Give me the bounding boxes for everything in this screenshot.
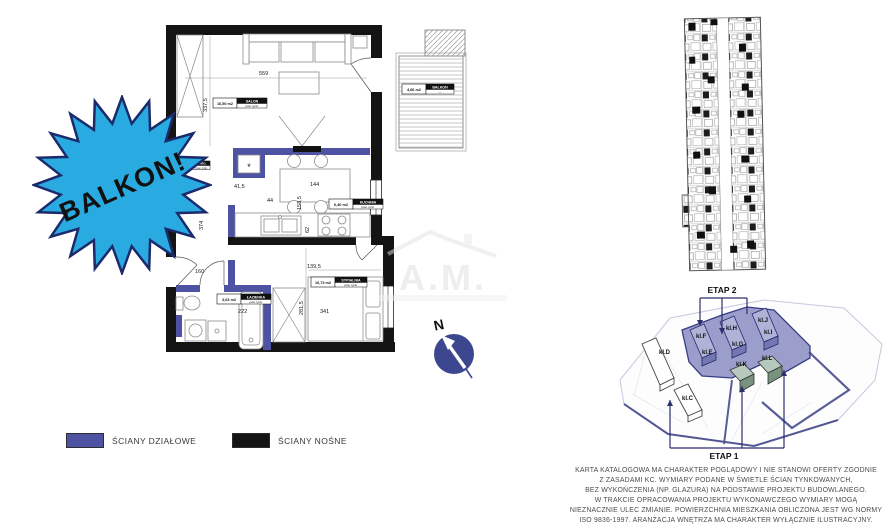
svg-text:10,73 m2: 10,73 m2 <box>315 281 331 285</box>
svg-text:139,5: 139,5 <box>307 264 321 270</box>
catalog-card: * <box>0 0 890 532</box>
svg-text:41,5: 41,5 <box>234 184 245 190</box>
balkon-badge: BALKON! <box>32 95 212 275</box>
svg-text:559: 559 <box>259 71 268 77</box>
svg-text:kl.J: kl.J <box>758 318 768 324</box>
svg-text:kl.C: kl.C <box>682 396 694 402</box>
svg-text:222: 222 <box>238 309 247 315</box>
svg-text:SYPIALNIA: SYPIALNIA <box>341 278 361 282</box>
site-plan: ETAP 2 ETAP 1 kl.D kl.F kl.E kl.H kl.G k… <box>612 282 890 464</box>
disclaimer-line: KARTA KATALOGOWA MA CHARAKTER POGLĄDOWY … <box>564 466 888 476</box>
svg-text:ŁAZIENKA: ŁAZIENKA <box>247 295 266 299</box>
svg-text:kl.K: kl.K <box>736 362 748 368</box>
svg-text:153,5: 153,5 <box>297 196 303 210</box>
svg-text:kl.H: kl.H <box>726 326 737 332</box>
svg-text:144: 144 <box>310 182 319 188</box>
tv <box>293 146 321 152</box>
disclaimer-line: BEZ WYKOŃCZENIA (NP. GLAZURA) NA PODSTAW… <box>564 486 888 496</box>
balcony-divider <box>425 30 465 56</box>
svg-text:341: 341 <box>320 309 329 315</box>
room-label-kuchnia: 6,40 m2 KUCHNIA pow. tynk. <box>329 199 383 209</box>
bearing-wall-label: ŚCIANY NOŚNE <box>278 436 347 446</box>
svg-text:kl.D: kl.D <box>659 350 671 356</box>
disclaimer-line: NIEZNACZNIE ULEC ZMIANIE. POWIERZCHNIA M… <box>564 506 888 516</box>
svg-text:16,50 m2: 16,50 m2 <box>217 102 233 106</box>
svg-text:kl.E: kl.E <box>702 350 713 356</box>
svg-text:6,40 m2: 6,40 m2 <box>334 203 348 207</box>
svg-text:BALKON: BALKON <box>432 85 448 89</box>
svg-text:kl.L: kl.L <box>762 356 773 362</box>
disclaimer-line: Z ZASADAMI KC. WYMIARY PODANE W ŚWIETLE … <box>564 476 888 486</box>
disclaimer-line: ISO 9836-1997. ARANŻACJA WNĘTRZA MA CHAR… <box>564 516 888 526</box>
legend-item-partition: ŚCIANY DZIAŁOWE <box>66 433 196 448</box>
svg-text:3,63 m2: 3,63 m2 <box>222 298 236 302</box>
svg-text:44: 44 <box>267 198 273 204</box>
compass: N <box>424 310 484 382</box>
building-floor-overview <box>681 14 771 276</box>
svg-text:SALON: SALON <box>246 99 259 103</box>
svg-text:kl.I: kl.I <box>764 330 773 336</box>
stage1-label: ETAP 1 <box>710 451 739 461</box>
stage2-label: ETAP 2 <box>708 285 737 295</box>
svg-text:pow. tynk.: pow. tynk. <box>361 205 375 209</box>
svg-text:281,5: 281,5 <box>299 301 305 315</box>
svg-text:pow. tynk.: pow. tynk. <box>344 283 358 287</box>
room-label-lazienka: 3,63 m2 ŁAZIENKA pow. tynk. <box>217 294 271 304</box>
partition-wall-label: ŚCIANY DZIAŁOWE <box>112 436 196 446</box>
legend-item-bearing: ŚCIANY NOŚNE <box>232 433 347 448</box>
north-label: N <box>432 316 445 334</box>
svg-text:4,66 m2: 4,66 m2 <box>407 88 421 92</box>
partition-wall-swatch <box>66 433 104 448</box>
room-label-salon: 16,50 m2 SALON pow. tynk. <box>213 98 267 108</box>
svg-text:kl.G: kl.G <box>732 342 744 348</box>
svg-text:pow. tynk.: pow. tynk. <box>245 104 259 108</box>
disclaimer-line: W TRAKCIE OPRACOWANIA PROJEKTU WYKONAWCZ… <box>564 496 888 506</box>
room-label-balkon: 4,66 m2 BALKON — <box>402 84 454 94</box>
svg-text:—: — <box>439 90 442 94</box>
bearing-wall-swatch <box>232 433 270 448</box>
disclaimer: KARTA KATALOGOWA MA CHARAKTER POGLĄDOWY … <box>564 466 888 526</box>
closet-asterisk: * <box>247 162 251 172</box>
svg-text:pow. tynk.: pow. tynk. <box>249 300 263 304</box>
room-label-sypialnia: 10,73 m2 SYPIALNIA pow. tynk. <box>311 277 367 287</box>
svg-text:62: 62 <box>305 227 311 233</box>
svg-text:KUCHNIA: KUCHNIA <box>360 200 377 204</box>
svg-text:kl.F: kl.F <box>696 334 707 340</box>
